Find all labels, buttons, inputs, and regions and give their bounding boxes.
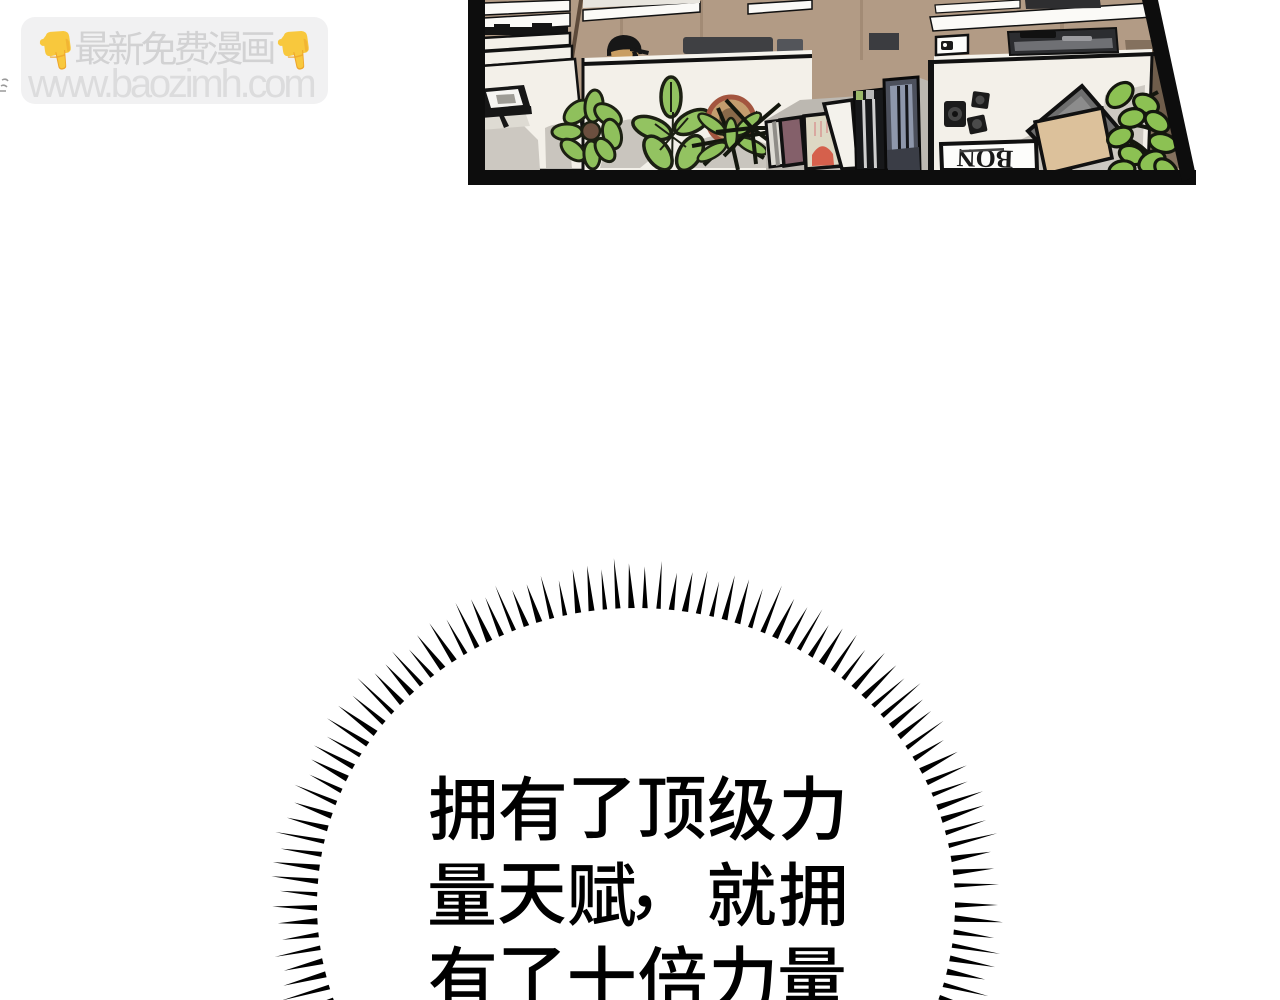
svg-text:BON: BON [956,143,1014,174]
